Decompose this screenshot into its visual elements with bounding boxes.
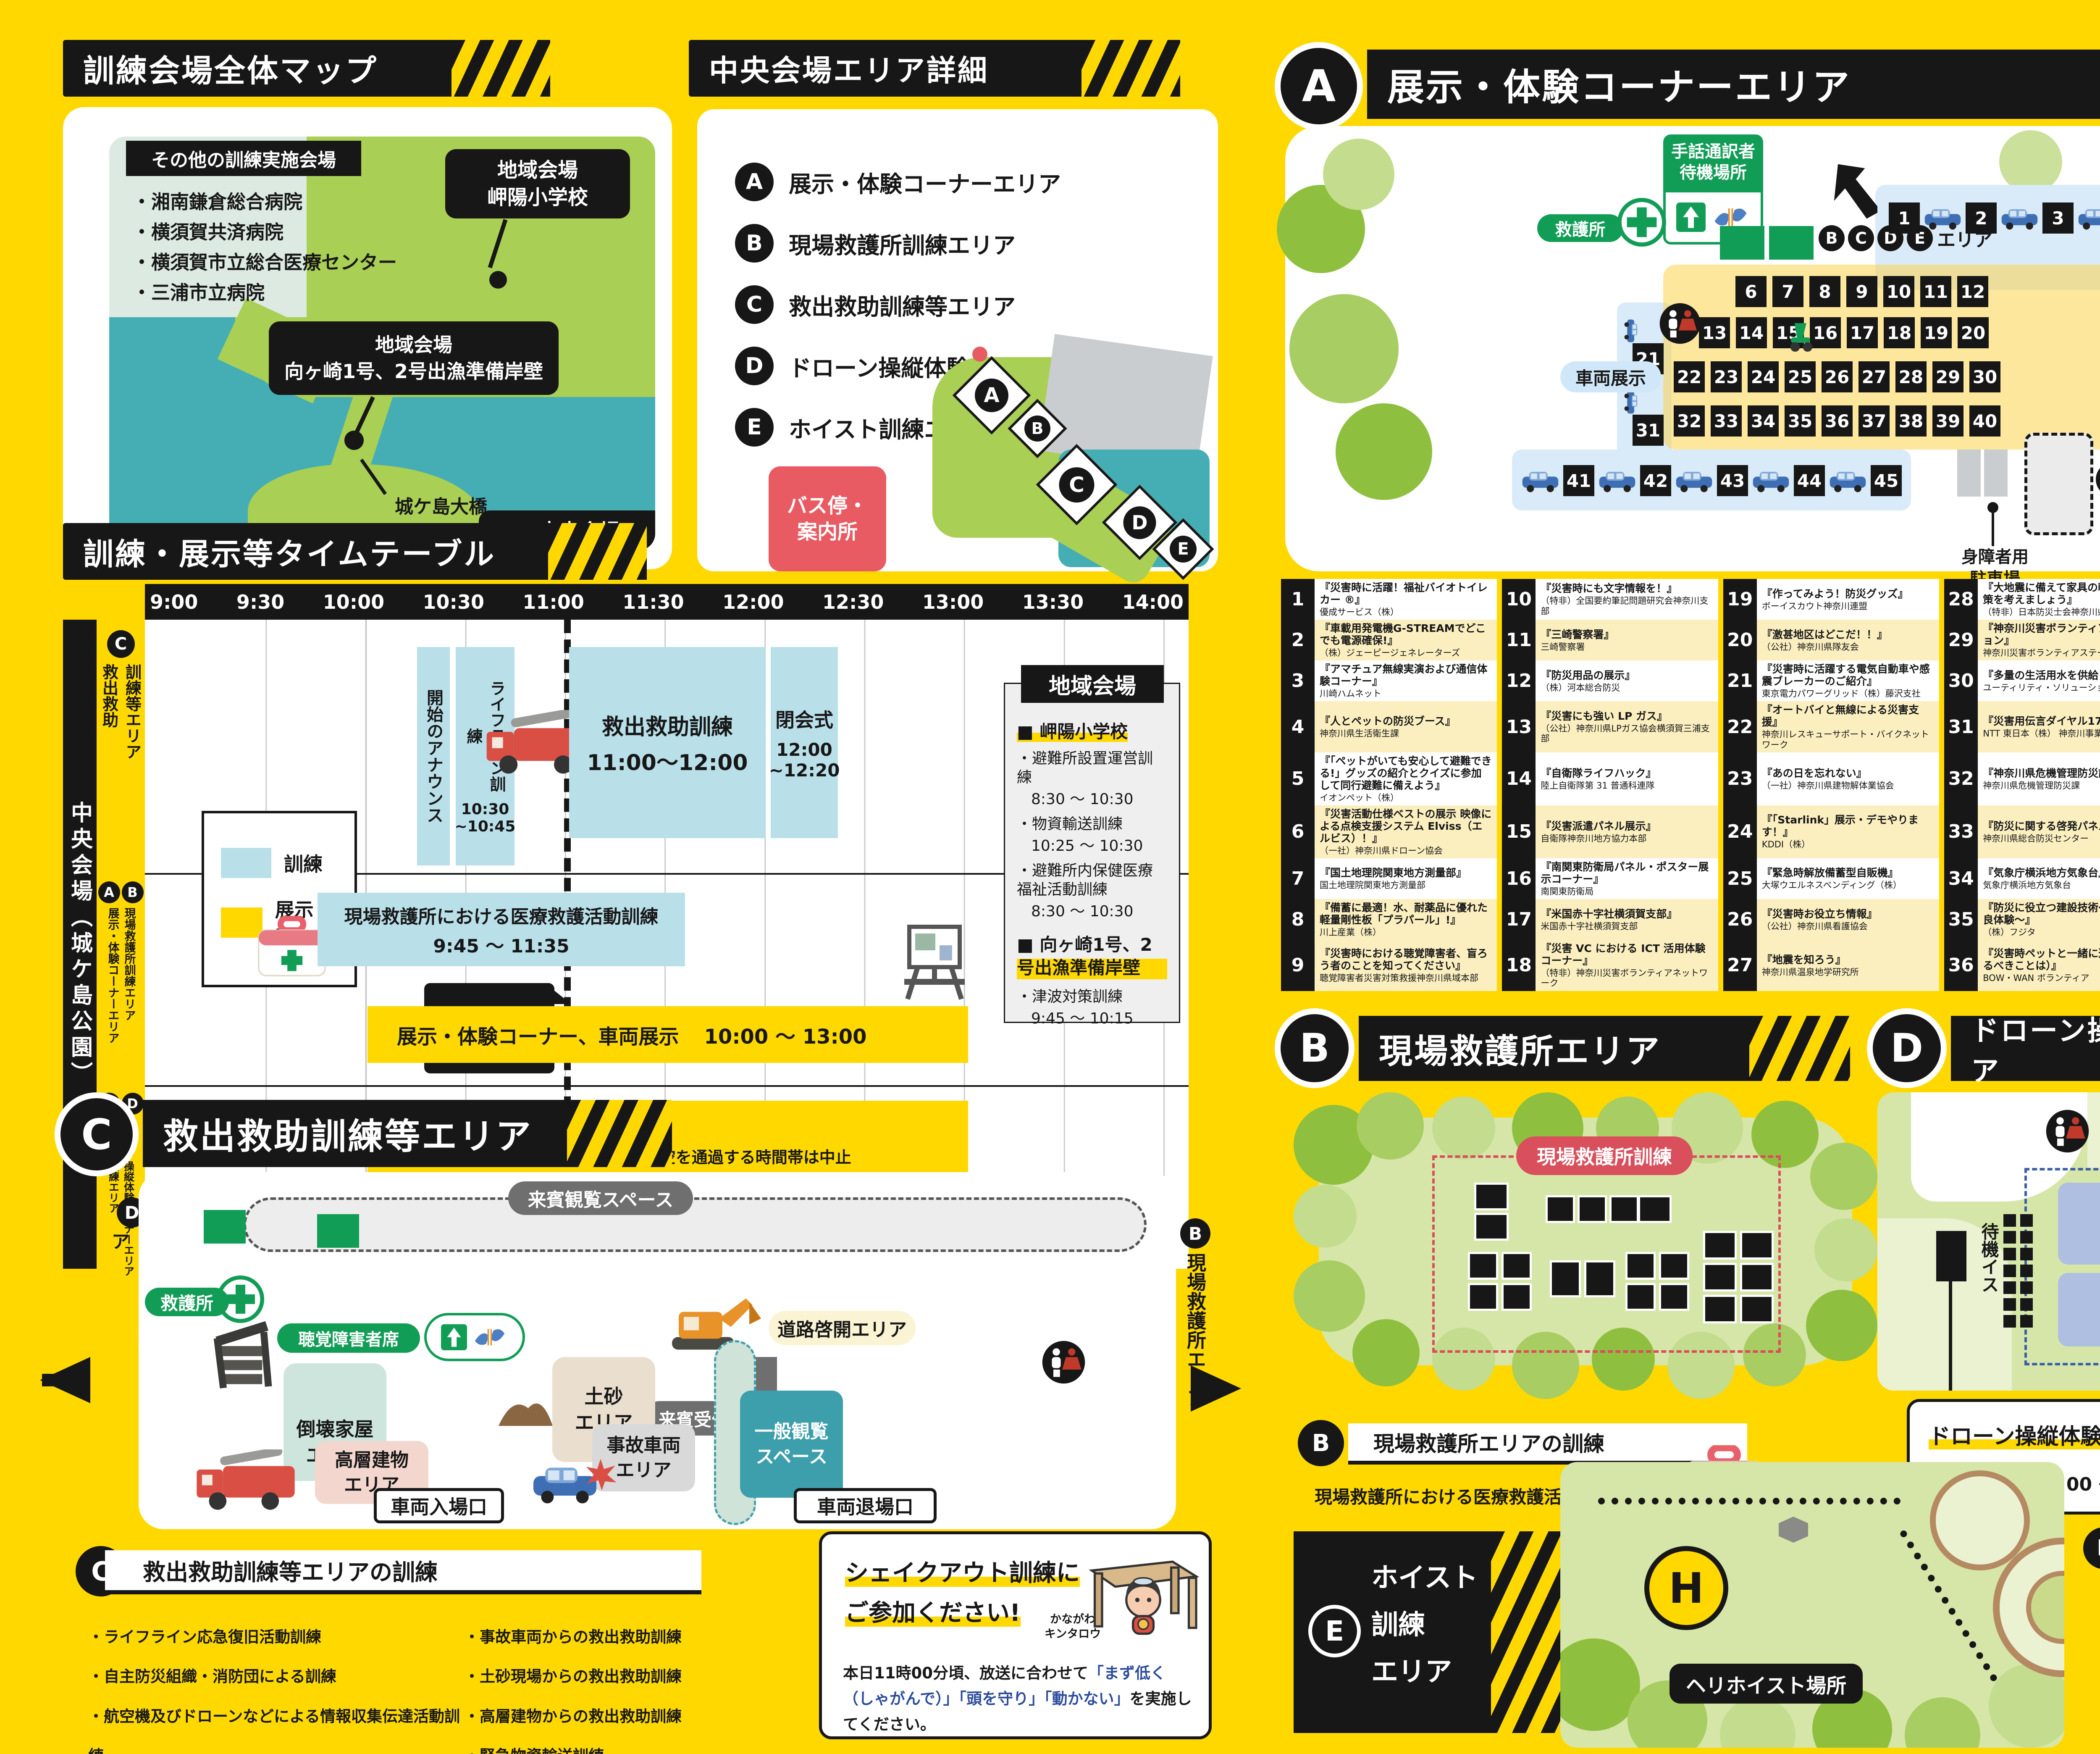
booth: 43 bbox=[1717, 465, 1748, 496]
area-c-train-left: ・ライフライン応急復旧活動訓練・自主防災組織・消防団による訓練・航空機及びドロー… bbox=[88, 1617, 475, 1754]
car-icon bbox=[1923, 205, 1963, 231]
exhibitor-number: 23 bbox=[1723, 752, 1757, 805]
legend-row: C 救出救助訓練等エリア bbox=[735, 274, 1128, 335]
booth: 23 bbox=[1711, 361, 1742, 392]
exhibitor-item: 2 『車載用発電機G-STREAMでどこでも電源確保!』 （株）ジェーピージェネ… bbox=[1281, 620, 1497, 660]
marker-school bbox=[489, 271, 507, 289]
exhibitor-title: 『災害にも強い LP ガス』 bbox=[1541, 710, 1713, 722]
booth-row-22-30: 222324252627282930 bbox=[1671, 358, 2003, 395]
overall-map-panel: その他の訓練実施会場 ・湘南鎌倉総合病院・横須賀共済病院・横須賀市立総合医療セン… bbox=[63, 107, 672, 569]
exhibitor-number: 18 bbox=[1502, 940, 1536, 991]
car-icon bbox=[1520, 468, 1560, 493]
exhibitor-title: 『災害派遣パネル展示』 bbox=[1541, 820, 1656, 832]
central-detail-title: 中央会場エリア詳細 bbox=[689, 40, 1120, 97]
exhibitor-org: 川上産業（株） bbox=[1320, 927, 1492, 937]
exhibitor-title: 『「Starlink」展示・デモやります！』 bbox=[1762, 814, 1934, 838]
exhibitor-org: 神奈川県温泉地学研究所 bbox=[1762, 967, 1859, 977]
exhibitor-number: 19 bbox=[1723, 579, 1757, 620]
central-mini-map: A B C D E bbox=[932, 344, 1210, 567]
exhibitor-item: 7 『国土地理院関東地方測量部』 国土地理院関東地方測量部 bbox=[1281, 858, 1497, 899]
exhibitor-item: 14 『自衛隊ライフハック』 陸上自衛隊第 31 普通科連隊 bbox=[1502, 752, 1718, 805]
venue-item: ・横須賀共済病院 bbox=[132, 217, 397, 247]
boundary-dotted-line bbox=[1598, 1498, 1900, 1504]
exhibitor-title: 『防災に役立つ建設技術〜ヘドロ改良体験〜』 bbox=[1983, 902, 2100, 926]
time-tick: 11:00 bbox=[522, 591, 584, 613]
exhibitor-title: 『災害活動仕様ベストの展示 映像による点検支援システム Elviss（エルビス）… bbox=[1320, 808, 1492, 844]
exhibitor-title: 『南関東防衛局パネル・ポスター展示コーナー』 bbox=[1541, 861, 1713, 885]
arrow-right-icon bbox=[1191, 1365, 1241, 1412]
exhibitor-list: 1 『災害時に活躍！福祉バイオトイレカー ®』 優成サービス（株） 2 『車載用… bbox=[1281, 579, 2100, 985]
exhibitor-title: 『アマチュア無線実演および通信体験コーナー』 bbox=[1320, 663, 1492, 687]
exhibitor-title: 『防災に関する啓発パネル』 bbox=[1983, 820, 2100, 832]
drone-pad bbox=[2058, 1183, 2100, 1265]
time-axis: 9:009:3010:0010:3011:0011:3012:0012:3013… bbox=[145, 584, 1189, 620]
exhibitor-item: 1 『災害時に活躍！福祉バイオトイレカー ®』 優成サービス（株） bbox=[1281, 579, 1497, 620]
reception-booth bbox=[1936, 1231, 1966, 1281]
exhibitor-item: 32 『神奈川県危機管理防災課』 神奈川県危機管理防災課 bbox=[1944, 752, 2100, 805]
legend-letter: E bbox=[735, 408, 774, 447]
event-exhibit: 展示・体験コーナー、車両展示 10:00 〜 13:00 bbox=[367, 1006, 968, 1063]
exhibitor-number: 8 bbox=[1281, 899, 1315, 940]
heliport-h: H bbox=[1644, 1546, 1728, 1630]
exhibitor-number: 26 bbox=[1723, 899, 1757, 940]
exhibitor-item: 16 『南関東防衛局パネル・ポスター展示コーナー』 南関東防衛局 bbox=[1502, 858, 1718, 899]
exhibitor-item: 12 『防災用品の展示』 （株）河本総合防災 bbox=[1502, 660, 1718, 701]
exhibitor-number: 15 bbox=[1502, 805, 1536, 858]
heli-hoist-spot-label: ヘリホイスト場所 bbox=[1669, 1664, 1863, 1704]
event-closing: 閉会式 12:00 ~12:20 bbox=[771, 647, 838, 838]
exhibitor-number: 22 bbox=[1723, 701, 1757, 752]
exhibitor-org: （株）ジェーピージェネレーターズ bbox=[1320, 648, 1492, 658]
callout-wharf: 地域会場向ヶ崎1号、2号出漁準備岸壁 bbox=[269, 321, 559, 395]
area-a-map: 手話通訳者待機場所 救護所 BCDE エリア 1 2 3 4 5 6789101… bbox=[1285, 126, 2100, 571]
booth: 2 bbox=[1966, 202, 1997, 234]
area-c-map: 来賓観覧スペース 救護所 聴覚障害者席 道路啓開エリア 来賓受付テント 倒壊家屋… bbox=[139, 1172, 1176, 1529]
tent-green bbox=[317, 1214, 359, 1248]
car-icon bbox=[1612, 318, 1652, 344]
soil-mound-icon bbox=[493, 1391, 556, 1428]
exhibitor-item: 17 『米国赤十字社横須賀支部』 米国赤十字社横須賀支部 bbox=[1502, 899, 1718, 940]
time-tick: 12:30 bbox=[822, 591, 884, 613]
collapsed-house-icon bbox=[202, 1315, 279, 1393]
legend-letter: D bbox=[735, 347, 774, 385]
booth: 30 bbox=[1969, 361, 2000, 392]
exhibitor-item: 24 『「Starlink」展示・デモやります！』 KDDI（株） bbox=[1723, 805, 1939, 858]
exhibitor-item: 19 『作ってみよう！防災グッズ』 ボーイスカウト神奈川連盟 bbox=[1723, 579, 1939, 620]
exhibitor-org: （株）河本総合防災 bbox=[1541, 683, 1635, 693]
bicycle-parking-label: 駐輪場 bbox=[2096, 462, 2100, 497]
scooter-icon bbox=[1785, 317, 1821, 353]
tent-green bbox=[1769, 226, 1814, 260]
exhibitor-item: 18 『災害 VC における ICT 活用体験コーナー』 （特非）神奈川災害ボラ… bbox=[1502, 940, 1718, 991]
hazard-stripes bbox=[451, 40, 550, 97]
exhibitor-item: 15 『災害派遣パネル展示』 自衛隊神奈川地方協力本部 bbox=[1502, 805, 1718, 858]
area-c-train-title: 救出救助訓練等エリアの訓練 bbox=[105, 1550, 701, 1594]
time-tick: 10:00 bbox=[323, 591, 384, 613]
exhibitor-title: 『三崎警察署』 bbox=[1541, 628, 1614, 641]
exhibitor-title: 『人とペットの防災ブース』 bbox=[1320, 715, 1456, 727]
regional-title: 地域会場 bbox=[1021, 665, 1164, 703]
booth: 45 bbox=[1871, 465, 1902, 496]
area-e-train-letter: E bbox=[2083, 1527, 2100, 1569]
exhibitor-item: 21 『災害時に活躍する電気自動車や感震ブレーカーのご紹介』 東京電力パワーグリ… bbox=[1723, 660, 1939, 701]
booth: 32 bbox=[1674, 405, 1705, 437]
legend-row: A 展示・体験コーナーエリア bbox=[735, 151, 1128, 213]
booth: 10 bbox=[1883, 276, 1914, 307]
exhibitor-title: 『自衛隊ライフハック』 bbox=[1541, 767, 1656, 779]
booth: 33 bbox=[1711, 405, 1742, 437]
general-viewing-label: 一般観覧スペース bbox=[740, 1391, 843, 1498]
exhibitor-item: 8 『備蓄に最適！水、耐薬品に優れた軽量剛性板「プラパール」!』 川上産業（株） bbox=[1281, 899, 1497, 940]
exhibitor-title: 『災害用伝言ダイヤル171体験』 bbox=[1983, 715, 2100, 727]
tent-green bbox=[1720, 226, 1764, 260]
exhibitor-title: 『作ってみよう！防災グッズ』 bbox=[1762, 588, 1908, 600]
timetable-title: 訓練・展示等タイムテーブル bbox=[63, 523, 586, 580]
exhibitor-org: 東京電力パワーグリッド（株）藤沢支社 bbox=[1762, 689, 1934, 699]
exhibitor-org: （特非）神奈川災害ボランティアネットワーク bbox=[1541, 968, 1713, 988]
exhibitor-title: 『気象庁横浜地方気象台』 bbox=[1983, 867, 2100, 879]
booth: 42 bbox=[1640, 465, 1671, 496]
area-d-map: ドローン飛行エリア 待機イス bbox=[1877, 1092, 2100, 1391]
exhibitor-number: 17 bbox=[1502, 899, 1536, 940]
area-b-train-letter: B bbox=[1298, 1420, 1344, 1466]
booth: 26 bbox=[1822, 361, 1853, 392]
bcde-letter: C bbox=[1848, 225, 1874, 251]
toilet-icon bbox=[1659, 302, 1701, 344]
venue-item: ・湘南鎌倉総合病院 bbox=[132, 187, 397, 217]
waiting-chairs-label: 待機イス bbox=[1976, 1223, 2002, 1319]
easel-icon bbox=[892, 920, 976, 1004]
exhibitor-item: 3 『アマチュア無線実演および通信体験コーナー』 川崎ハムネット bbox=[1281, 660, 1497, 701]
booth-row-13-20: 1314151617181920 bbox=[1696, 314, 1992, 351]
area-c-train-right: ・事故車両からの救出救助訓練・土砂現場からの救出救助訓練・高層建物からの救出救助… bbox=[464, 1617, 808, 1754]
exhibitor-org: KDDI（株） bbox=[1762, 839, 1934, 849]
exhibitor-org: 神奈川県生活衛生課 bbox=[1320, 728, 1456, 739]
exhibitor-title: 『神奈川災害ボランティアステーション』 bbox=[1983, 622, 2100, 647]
event-flyer: 訓練会場全体マップ その他の訓練実施会場 ・湘南鎌倉総合病院・横須賀共済病院・横… bbox=[0, 0, 2100, 1754]
other-venues-list: ・湘南鎌倉総合病院・横須賀共済病院・横須賀市立総合医療センター・三浦市立病院 bbox=[132, 187, 397, 308]
exhibitor-number: 30 bbox=[1944, 660, 1978, 701]
regional-wharf-head: ■ 向ヶ崎1号、2号出漁準備岸壁 bbox=[1017, 934, 1167, 979]
exhibitor-item: 29 『神奈川災害ボランティアステーション』 神奈川災害ボランティアステーション bbox=[1944, 620, 2100, 660]
exhibitor-title: 『米国赤十字社横須賀支部』 bbox=[1541, 908, 1677, 920]
aid-station-label: 救護所 bbox=[1537, 214, 1623, 242]
exhibitor-number: 31 bbox=[1944, 701, 1978, 752]
sign-language-waiting-label: 手話通訳者待機場所 bbox=[1663, 134, 1763, 190]
exhibitor-number: 3 bbox=[1281, 660, 1315, 701]
regional-venues-box: 地域会場 ■ 岬陽小学校 ・避難所設置運営訓練 8:30 〜 10:30 ・物資… bbox=[1004, 683, 1180, 1023]
area-c-letter: C bbox=[55, 1092, 139, 1176]
regional-item: ・避難所内保健医療福祉活動訓練 8:30 〜 10:30 bbox=[1017, 861, 1167, 921]
booth: 40 bbox=[1969, 405, 2000, 437]
exhibitor-number: 6 bbox=[1281, 805, 1315, 858]
exhibitor-item: 22 『オートバイと無線による災害支援』 神奈川レスキューサポート・バイクネット… bbox=[1723, 701, 1939, 752]
booth: 27 bbox=[1858, 361, 1890, 392]
drone-reception-title: ドローン操縦体験受付はこちら！ bbox=[1929, 1419, 2100, 1450]
regional-wharf-items: ・津波対策訓練 9:45 〜 10:15 bbox=[1017, 984, 1167, 1028]
booth: 35 bbox=[1785, 405, 1816, 437]
exhibitor-number: 12 bbox=[1502, 660, 1536, 701]
bridge-label: 城ケ島大橋 bbox=[395, 492, 487, 518]
booth: 11 bbox=[1920, 276, 1951, 307]
area-e-map: H ヘリホイスト場所 bbox=[1560, 1462, 2064, 1748]
exhibitor-item: 26 『災害時お役立ち情報』 （公社）神奈川県看護協会 bbox=[1723, 899, 1939, 940]
exhibitor-item: 30 『多量の生活用水を供給します』 ユーティリティ・ソリューションズ bbox=[1944, 660, 2100, 701]
car-icon bbox=[1674, 468, 1714, 493]
row-label-ab: A B 展示・体験コーナーエリア 現場救護所訓練エリア bbox=[97, 875, 145, 1085]
exhibitor-org: 大塚ウエルネスベンディング（株） bbox=[1762, 880, 1902, 890]
aid-cross-icon bbox=[1617, 197, 1667, 247]
car-icon bbox=[1828, 468, 1868, 493]
callout-school: 地域会場岬陽小学校 bbox=[445, 149, 630, 218]
training-item: ・自主防災組織・消防団による訓練 bbox=[88, 1657, 475, 1696]
waiting-chairs bbox=[2003, 1214, 2033, 1328]
exhibitor-item: 28 『大地震に備えて家具の転倒防止対策を考えましょう』 （特非）日本防災士会神… bbox=[1944, 579, 2100, 620]
hazard-stripes bbox=[567, 1100, 672, 1167]
booth: 39 bbox=[1932, 405, 1963, 437]
time-tick: 13:30 bbox=[1022, 591, 1084, 613]
area-c-title: 救出救助訓練等エリア bbox=[143, 1100, 607, 1167]
exhibitor-title: 『緊急時解放備蓄型自販機』 bbox=[1762, 867, 1902, 879]
exhibitor-item: 9 『災害時における聴覚障害者、盲ろう者のことを知ってください』 聴覚障害者災害… bbox=[1281, 940, 1497, 991]
booth: 19 bbox=[1921, 317, 1952, 348]
car-icon bbox=[1612, 390, 1652, 415]
exhibitor-number: 13 bbox=[1502, 701, 1536, 752]
area-e-title-box: E ホイスト訓練エリア bbox=[1294, 1531, 1491, 1733]
regional-item: ・避難所設置運営訓練 8:30 〜 10:30 bbox=[1017, 749, 1167, 809]
booth: 7 bbox=[1772, 276, 1803, 307]
exhibitor-number: 5 bbox=[1281, 752, 1315, 805]
time-tick: 9:00 bbox=[150, 591, 198, 613]
bus-stop-callout: バス停・案内所 bbox=[769, 466, 886, 571]
exhibitor-org: 聴覚障害者災害対策救援神奈川県域本部 bbox=[1320, 973, 1492, 983]
event-medical: 現場救護所における医療救護活動訓練 9:45 〜 11:35 bbox=[318, 893, 685, 966]
legend-letter: A bbox=[735, 163, 774, 201]
regional-school-items: ・避難所設置運営訓練 8:30 〜 10:30 ・物資輸送訓練 10:25 〜 … bbox=[1017, 749, 1167, 921]
to-bcde-arrow-icon bbox=[1825, 160, 1877, 223]
bicycle-parking-zone bbox=[2024, 433, 2093, 535]
area-e-title: ホイスト訓練エリア bbox=[1371, 1554, 1478, 1696]
bus-stop-pin bbox=[972, 347, 987, 362]
legend-label: 救出救助訓練等エリア bbox=[789, 288, 1016, 321]
training-item: ・高層建物からの救出救助訓練 bbox=[464, 1697, 808, 1736]
exhibitor-number: 4 bbox=[1281, 701, 1315, 752]
to-area-b-label: B 現場救護所エリア bbox=[1180, 1218, 1210, 1446]
exhibitor-title: 『大地震に備えて家具の転倒防止対策を考えましょう』 bbox=[1983, 581, 2100, 606]
vehicle-display-label: 車両展示 bbox=[1560, 361, 1661, 392]
venue-item: ・横須賀市立総合医療センター bbox=[132, 247, 397, 278]
exhibitor-number: 25 bbox=[1723, 858, 1757, 899]
booth: 9 bbox=[1846, 276, 1877, 307]
car-icon bbox=[1597, 468, 1637, 493]
area-a-letter: A bbox=[1275, 42, 1363, 130]
time-tick: 14:00 bbox=[1122, 591, 1184, 613]
exhibitor-title: 『災害時における聴覚障害者、盲ろう者のことを知ってください』 bbox=[1320, 947, 1492, 972]
regional-school-head: ■ 岬陽小学校 bbox=[1017, 721, 1128, 742]
sign-language-hands-icon bbox=[471, 1325, 508, 1349]
bcde-letter: B bbox=[1819, 225, 1845, 251]
training-item: ・ライフライン応急復旧活動訓練 bbox=[88, 1617, 475, 1657]
car-icon bbox=[2076, 205, 2100, 231]
booth: 38 bbox=[1895, 405, 1927, 437]
legend-letter: C bbox=[735, 285, 774, 324]
exhibitor-org: （特非）全国要約筆記問題研究会神奈川支部 bbox=[1541, 596, 1713, 616]
exhibitor-title: 『神奈川県危機管理防災課』 bbox=[1983, 767, 2100, 779]
booth: 6 bbox=[1735, 276, 1767, 307]
exhibitor-org: 神奈川レスキューサポート・バイクネットワーク bbox=[1762, 729, 1934, 749]
exhibitor-number: 34 bbox=[1944, 858, 1978, 899]
booth-row-32-40: 323334353637383940 bbox=[1671, 402, 2003, 439]
exhibitor-item: 10 『災害時にも文字情報を！』 （特非）全国要約筆記問題研究会神奈川支部 bbox=[1502, 579, 1718, 620]
booth: 13 bbox=[1699, 317, 1730, 348]
car-icon bbox=[1751, 468, 1791, 493]
exhibitor-title: 『災害時ペットと一緒に避難（今やるべきことは）』 bbox=[1983, 947, 2100, 972]
exhibitor-org: 南関東防衛局 bbox=[1541, 886, 1713, 897]
excavator-icon bbox=[664, 1277, 764, 1355]
exhibitor-number: 2 bbox=[1281, 620, 1315, 660]
venue-item: ・三浦市立病院 bbox=[132, 278, 397, 308]
exhibitor-item: 23 『あの日を忘れない』 （一社）神奈川県建物解体業協会 bbox=[1723, 752, 1939, 805]
booth: 25 bbox=[1785, 361, 1816, 392]
disabled-parking-space bbox=[1957, 450, 1981, 497]
training-item: ・土砂現場からの救出救助訓練 bbox=[464, 1657, 808, 1696]
exhibitor-org: 国土地理院関東地方測量部 bbox=[1320, 880, 1467, 890]
field-aid-training-label: 現場救護所訓練 bbox=[1516, 1136, 1693, 1175]
area-e-letter: E bbox=[1308, 1605, 1361, 1657]
toilet-icon bbox=[2045, 1109, 2089, 1153]
exhibitor-item: 20 『激甚地区はどこだ！！』 （公社）神奈川県隊友会 bbox=[1723, 620, 1939, 660]
exhibitor-item: 5 『「ペットがいても安心して避難できる!」グッズの紹介とクイズに参加して同行避… bbox=[1281, 752, 1497, 805]
disabled-parking-space bbox=[1984, 450, 2008, 497]
crash-burst-icon bbox=[584, 1458, 617, 1491]
booth: 24 bbox=[1748, 361, 1779, 392]
area-b-title: 現場救護所エリア bbox=[1359, 1016, 1790, 1081]
exhibitor-org: 三崎警察署 bbox=[1541, 642, 1614, 652]
other-venues-title: その他の訓練実施会場 bbox=[126, 141, 361, 176]
exhibitor-item: 11 『三崎警察署』 三崎警察署 bbox=[1502, 620, 1718, 660]
tent-green bbox=[204, 1210, 246, 1244]
exhibitor-org: 川崎ハムネット bbox=[1320, 689, 1492, 699]
exhibitor-item: 35 『防災に役立つ建設技術〜ヘドロ改良体験〜』 （株）フジタ bbox=[1944, 899, 2100, 940]
area-b-map: 現場救護所訓練 bbox=[1294, 1092, 1877, 1391]
booth: 36 bbox=[1822, 405, 1853, 437]
evacuation-arrow-icon bbox=[441, 1324, 467, 1350]
exhibitor-item: 6 『災害活動仕様ベストの展示 映像による点検支援システム Elviss（エルビ… bbox=[1281, 805, 1497, 858]
exhibitor-org: （一社）神奈川県建物解体業協会 bbox=[1762, 781, 1894, 791]
booth: 34 bbox=[1748, 405, 1779, 437]
overall-map: その他の訓練実施会場 ・湘南鎌倉総合病院・横須賀共済病院・横須賀市立総合医療セン… bbox=[109, 137, 655, 550]
hearing-impaired-seats-label: 聴覚障害者席 bbox=[277, 1323, 420, 1353]
exhibitor-title: 『災害時に活躍する電気自動車や感震ブレーカーのご紹介』 bbox=[1762, 663, 1934, 687]
exhibitor-org: （特非）日本防災士会神奈川県支部 bbox=[1983, 607, 2100, 617]
exhibitor-number: 21 bbox=[1723, 660, 1757, 701]
exhibitor-title: 『多量の生活用水を供給します』 bbox=[1983, 669, 2100, 681]
booth: 12 bbox=[1957, 276, 1988, 307]
booth: 1 bbox=[1889, 202, 1920, 234]
exhibitor-title: 『地震を知ろう』 bbox=[1762, 954, 1859, 966]
shakeout-invite-box: シェイクアウト訓練にご参加ください! かながわキンタロウ 本日11時00分頃、放… bbox=[819, 1531, 1212, 1739]
booth-row-6-12: 6789101112 bbox=[1732, 273, 1991, 310]
area-d-letter: D bbox=[1867, 1008, 1947, 1088]
booth: 3 bbox=[2042, 202, 2074, 234]
shakeout-body: 本日11時00分頃、放送に合わせて「まず低く（しゃがんで）」「頭を守り」「動かな… bbox=[843, 1660, 1196, 1737]
exhibitor-number: 11 bbox=[1502, 620, 1536, 660]
lookout-deco bbox=[1930, 1470, 2030, 1570]
training-item: ・事故車両からの救出救助訓練 bbox=[464, 1617, 808, 1657]
exhibitor-title: 『災害 VC における ICT 活用体験コーナー』 bbox=[1541, 942, 1713, 967]
event-announce: 開始のアナウンス bbox=[417, 647, 450, 865]
evacuation-arrow-icon bbox=[1676, 202, 1706, 232]
legend-letter: B bbox=[735, 224, 774, 263]
mascot-under-table-icon bbox=[1084, 1547, 1202, 1646]
exhibitor-item: 31 『災害用伝言ダイヤル171体験』 NTT 東日本（株） 神奈川事業部 bbox=[1944, 701, 2100, 752]
marker-wharf bbox=[344, 431, 364, 450]
exhibitor-title: 『あの日を忘れない』 bbox=[1762, 767, 1894, 779]
training-item: ・緊急物資輸送訓練 bbox=[464, 1736, 808, 1754]
area-b-letter: B bbox=[1275, 1008, 1354, 1088]
exhibitor-org: 優成サービス（株） bbox=[1320, 607, 1492, 617]
guest-viewing-label: 来賓観覧スペース bbox=[508, 1181, 693, 1215]
area-d-title: ドローン操縦体験コーナーエリア bbox=[1951, 1016, 2100, 1081]
booth: 17 bbox=[1847, 317, 1878, 348]
hazard-stripes bbox=[1081, 40, 1180, 97]
exhibitor-title: 『オートバイと無線による災害支援』 bbox=[1762, 704, 1934, 728]
booth-31: 31 bbox=[1633, 415, 1664, 446]
area-a-title: 展示・体験コーナーエリア bbox=[1367, 50, 2100, 119]
exhibitor-number: 27 bbox=[1723, 940, 1757, 991]
booth: 29 bbox=[1932, 361, 1963, 392]
training-item: ・航空機及びドローンなどによる情報収集伝達活動訓練 bbox=[88, 1697, 475, 1754]
aid-station-label: 救護所 bbox=[145, 1288, 229, 1316]
event-rescue: 救出救助訓練 11:00〜12:00 bbox=[569, 647, 766, 838]
rock-deco bbox=[1779, 1517, 1808, 1543]
exhibitor-title: 『備蓄に最適！水、耐薬品に優れた軽量剛性板「プラパール」!』 bbox=[1320, 902, 1492, 926]
booth: 44 bbox=[1794, 465, 1825, 496]
exhibitor-title: 『災害時お役立ち情報』 bbox=[1762, 908, 1877, 920]
exhibitor-number: 1 bbox=[1281, 579, 1315, 620]
exhibitor-org: 気象庁横浜地方気象台 bbox=[1983, 880, 2100, 890]
exhibitor-org: 神奈川災害ボランティアステーション bbox=[1983, 648, 2100, 658]
exhibitor-number: 14 bbox=[1502, 752, 1536, 805]
exhibitor-org: （一社）神奈川県ドローン協会 bbox=[1320, 846, 1492, 856]
exhibitor-org: NTT 東日本（株） 神奈川事業部 bbox=[1983, 728, 2100, 739]
exhibitor-org: ボーイスカウト神奈川連盟 bbox=[1762, 601, 1908, 611]
hazard-stripes bbox=[1491, 1531, 1560, 1733]
overall-map-title: 訓練会場全体マップ bbox=[63, 40, 490, 97]
exhibitor-number: 7 bbox=[1281, 858, 1315, 899]
booth: 14 bbox=[1736, 317, 1767, 348]
row-label-c: C 救出救助 訓練等エリア bbox=[97, 620, 145, 873]
time-tick: 13:00 bbox=[922, 591, 984, 613]
car-icon bbox=[2000, 205, 2040, 231]
exhibitor-number: 28 bbox=[1944, 579, 1978, 620]
exhibitor-number: 35 bbox=[1944, 899, 1978, 940]
exhibitor-number: 20 bbox=[1723, 620, 1757, 660]
booth: 20 bbox=[1958, 317, 1989, 348]
booth: 37 bbox=[1858, 405, 1890, 437]
vehicle-entry-label: 車両入場口 bbox=[374, 1488, 504, 1523]
exhibitor-org: 米国赤十字社横須賀支部 bbox=[1541, 921, 1677, 931]
booth-row-1-5: 1 2 3 4 5 bbox=[1886, 200, 2100, 237]
exhibitor-title: 『車載用発電機G-STREAMでどこでも電源確保!』 bbox=[1320, 622, 1492, 647]
hearing-icons bbox=[424, 1313, 525, 1361]
exhibitor-number: 24 bbox=[1723, 805, 1757, 858]
exhibitor-org: （公社）神奈川県隊友会 bbox=[1762, 642, 1887, 652]
booth: 28 bbox=[1895, 361, 1927, 392]
exhibitor-number: 29 bbox=[1944, 620, 1978, 660]
exhibitor-org: （公社）神奈川県LPガス協会横須賀三浦支部 bbox=[1541, 723, 1713, 744]
exhibitor-item: 27 『地震を知ろう』 神奈川県温泉地学研究所 bbox=[1723, 940, 1939, 991]
